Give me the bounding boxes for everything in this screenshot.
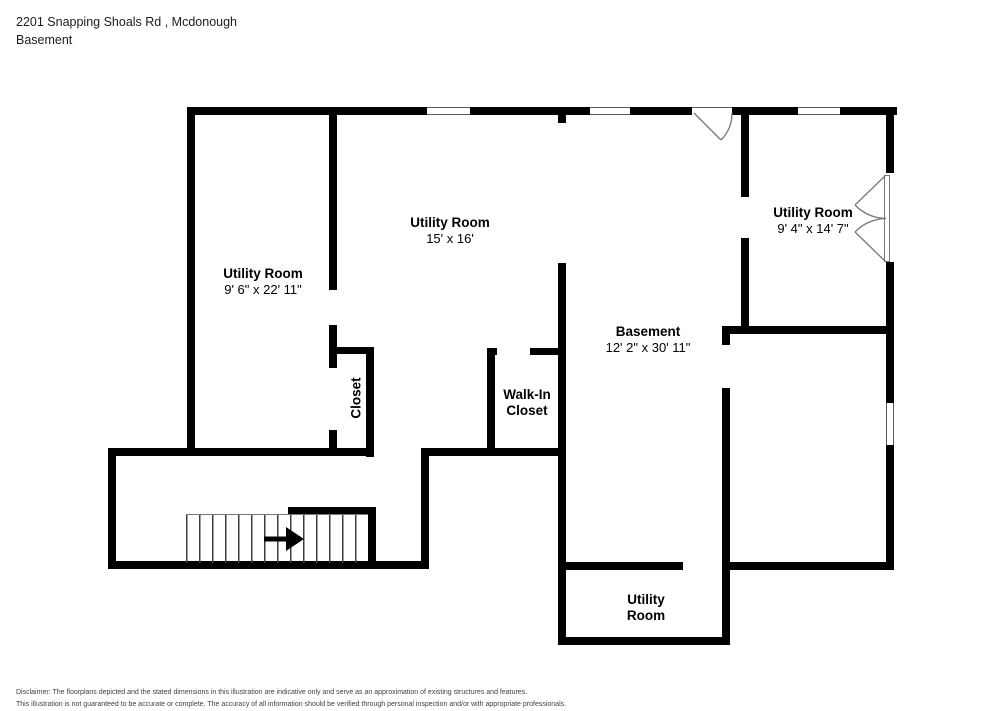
window	[427, 107, 470, 115]
disclaimer-line-1: Disclaimer: The floorplans depicted and …	[16, 687, 527, 699]
wall	[108, 448, 373, 456]
wall	[732, 107, 798, 115]
disclaimer-line-2: This illustration is not guaranteed to b…	[16, 699, 566, 711]
room-label-utility-left: Utility Room 9' 6" x 22' 11"	[223, 266, 303, 298]
wall	[741, 238, 749, 334]
wall	[741, 107, 749, 197]
wall	[530, 348, 566, 355]
door-swing-icon	[694, 113, 732, 140]
wall	[421, 448, 429, 569]
wall	[368, 507, 376, 569]
floorplan-page: 2201 Snapping Shoals Rd , Mcdonough Base…	[0, 0, 1000, 707]
wall	[722, 388, 730, 645]
wall	[421, 448, 566, 456]
room-label-utility-center: Utility Room 15' x 16'	[410, 215, 490, 247]
wall	[558, 562, 683, 570]
wall	[487, 348, 497, 355]
floorplan-drawing: Utility Room 9' 6" x 22' 11" Utility Roo…	[0, 0, 1000, 707]
room-label-utility-bottom: Utility Room	[627, 592, 665, 624]
room-label-utility-topright: Utility Room 9' 4" x 14' 7"	[773, 205, 853, 237]
door-opening	[692, 107, 732, 115]
french-door-leaves	[884, 175, 890, 262]
french-door-swing-icon	[855, 175, 886, 262]
wall	[337, 347, 374, 354]
wall	[487, 348, 495, 456]
wall	[187, 107, 427, 115]
wall	[329, 107, 337, 290]
wall	[722, 326, 894, 334]
wall	[840, 107, 897, 115]
wall	[558, 637, 730, 645]
window	[798, 107, 840, 115]
room-label-walkin-closet: Walk-In Closet	[503, 387, 551, 419]
window	[590, 107, 630, 115]
wall	[187, 107, 195, 456]
wall	[366, 347, 374, 457]
stairs	[186, 514, 368, 563]
wall	[288, 507, 376, 514]
wall	[630, 107, 692, 115]
wall	[329, 325, 337, 368]
wall	[108, 448, 116, 569]
wall	[722, 562, 894, 570]
wall	[470, 107, 590, 115]
window	[886, 403, 894, 445]
room-label-basement: Basement 12' 2" x 30' 11"	[606, 324, 691, 356]
room-label-closet: Closet	[349, 377, 364, 418]
wall	[886, 107, 894, 173]
wall	[886, 445, 894, 568]
